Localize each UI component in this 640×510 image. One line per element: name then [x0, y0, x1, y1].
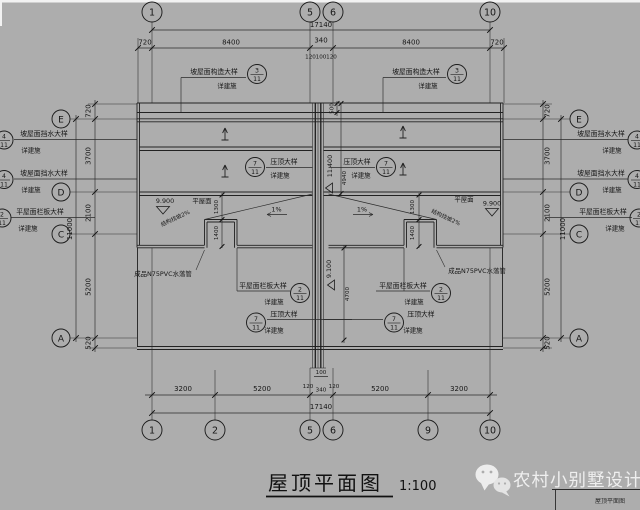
grade-label: 1%: [271, 206, 281, 214]
dim-label: 8400: [222, 39, 240, 47]
callout-detail: 详建施: [21, 146, 41, 155]
axis-label: 5: [307, 8, 313, 19]
detail-number: 2: [298, 287, 302, 294]
scan-edge-top: [0, 0, 640, 3]
dim-label: 1400: [214, 225, 220, 240]
wechat-icon: [476, 465, 511, 497]
watermark: 农村小别墅设计: [476, 465, 640, 497]
note-label: 结构找坡2%: [430, 207, 462, 227]
detail-sheet: 11: [453, 76, 461, 83]
callout-coping: 压顶大样 详建施 7 11: [247, 310, 353, 335]
grid-horizontal-lines: [70, 104, 570, 348]
axis-label: C: [58, 231, 64, 241]
callout-flashing: 坡屋面挡水大样 详建施 4 11: [503, 169, 640, 195]
axis-label: 1: [149, 426, 155, 437]
detail-number: 7: [384, 161, 388, 168]
level-triangle-icon: [157, 207, 170, 215]
detail-sheet: 11: [0, 142, 8, 149]
title-block-fragment: 屋顶平面图: [552, 490, 640, 510]
dim-label: 520: [85, 336, 93, 349]
dim-label: 720: [490, 39, 503, 47]
axis-label: 5: [307, 426, 313, 437]
dim-label: 340: [316, 388, 327, 394]
detail-number: 4: [635, 173, 639, 180]
callout-detail: 详建施: [21, 185, 41, 194]
detail-number: 4: [635, 134, 639, 141]
detail-number: 7: [253, 161, 257, 168]
callout-coping: 压顶大样 详建施 7 11: [246, 157, 313, 180]
detail-number: 3: [255, 68, 259, 75]
slope-arrow-icon: [400, 163, 407, 175]
callout-flashing: 坡屋面挡水大样 详建施 4 11: [0, 169, 137, 195]
dim-label: 120: [305, 55, 316, 61]
title-block-label: 屋顶平面图: [595, 498, 625, 505]
roof-eave-lines: [137, 103, 503, 196]
dim-label: 1300: [410, 199, 416, 214]
page-title: 屋顶平面图: [268, 471, 383, 495]
callout-parapet: 平屋面栏板大样 详建施 2 11: [376, 248, 451, 306]
dim-label: 720: [138, 39, 151, 47]
detail-sheet: 11: [437, 295, 445, 302]
dim-label: 3200: [450, 385, 468, 393]
dim-label: 2100: [544, 204, 552, 222]
detail-number: 3: [455, 68, 459, 75]
callout-text: 平屋面栏板大样: [16, 207, 64, 216]
party-wall-lines: [313, 103, 324, 368]
level-label: 9.100: [325, 260, 333, 278]
dim-label: 4940: [342, 170, 348, 185]
dim-label: 8400: [402, 39, 420, 47]
callout-detail: 详建施: [18, 224, 38, 233]
dim-label: 120: [326, 55, 337, 61]
level-triangle-icon: [328, 280, 335, 290]
callout-coping: 压顶大样 详建施 7 11: [329, 157, 396, 180]
detail-sheet: 11: [252, 325, 260, 332]
dim-label: 5200: [544, 278, 552, 296]
axis-label: 9: [425, 426, 431, 437]
callout-text: 压顶大样: [270, 157, 297, 166]
callout-text: 坡屋面挡水大样: [577, 169, 625, 178]
axis-label: A: [58, 335, 65, 345]
dim-label: 120: [303, 384, 314, 390]
roof-plan-scan: 17140 720 8400 340 8400 720 120 100 120 …: [0, 0, 640, 510]
detail-sheet: 11: [635, 220, 640, 227]
callout-roof-construction: 坡屋面构造大样 详建施 3 11: [181, 65, 267, 113]
dim-label: 5200: [371, 385, 389, 393]
callout-text: 坡屋面构造大样: [190, 67, 238, 76]
grade-label: 1%: [357, 206, 367, 214]
dim-label: 11000: [559, 218, 567, 240]
axis-label: D: [58, 189, 65, 199]
axis-bubbles-bottom: 1 2 5 6 9 10: [142, 420, 500, 440]
callout-text: 平屋面栏板大样: [239, 281, 287, 290]
detail-number: 2: [0, 212, 4, 219]
callout-flashing: 坡屋面挡水大样 详建施 4 11: [0, 129, 137, 155]
callout-text: 压顶大样: [407, 310, 434, 319]
axis-label: A: [576, 335, 583, 345]
detail-sheet: 11: [251, 169, 259, 176]
axis-label: 6: [330, 426, 336, 437]
axis-label: D: [576, 189, 583, 199]
detail-number: 7: [392, 316, 396, 323]
level-triangle-icon: [326, 183, 333, 193]
level-label: 9.900: [156, 197, 174, 205]
title-scale: 1:100: [399, 479, 436, 494]
detail-number: 2: [439, 287, 443, 294]
downspout-label: 成品N75PVC水落管: [448, 266, 506, 275]
dim-label: 3700: [85, 147, 93, 165]
dim-label: 340: [314, 37, 327, 45]
callout-text: 坡屋面挡水大样: [20, 169, 68, 178]
axis-label: C: [576, 231, 582, 241]
dim-label: 720: [544, 104, 552, 117]
callout-detail: 详建施: [351, 171, 371, 180]
detail-number: 4: [2, 134, 6, 141]
callout-detail: 详建施: [217, 81, 237, 90]
drawing-title: 屋顶平面图 1:100: [266, 471, 436, 497]
detail-sheet: 11: [633, 142, 640, 149]
axis-bubbles-right: E D C A: [570, 110, 588, 347]
dim-lines: [76, 100, 95, 352]
callout-text: 压顶大样: [343, 157, 370, 166]
dim-ticks: [73, 101, 98, 351]
dim-label: 1300: [214, 199, 220, 214]
callout-text: 坡屋面挡水大样: [20, 129, 68, 138]
level-triangle-icon: [486, 209, 499, 217]
callout-text: 坡屋面挡水大样: [577, 129, 625, 138]
detail-sheet: 11: [0, 182, 8, 189]
dim-label: 5200: [253, 385, 271, 393]
dim-label: 520: [544, 336, 552, 349]
note-label: 平屋面: [454, 196, 474, 204]
callout-flashing: 坡屋面挡水大样 详建施 4 11: [503, 129, 640, 155]
callout-detail: 详建施: [403, 326, 423, 335]
detail-sheet: 11: [633, 182, 640, 189]
callout-text: 压顶大样: [270, 310, 297, 319]
axis-label: 2: [212, 426, 218, 437]
callout-parapet: 平屋面栏板大样 详建施 2 11: [0, 207, 95, 233]
dim-label: 720: [85, 104, 93, 117]
watermark-brand: 农村小别墅设计: [513, 471, 640, 491]
axis-label: E: [58, 116, 64, 126]
axis-label: 1: [149, 8, 155, 19]
dimensions-bottom: 3200 5200 120 340 120 5200 3200 100 1714…: [145, 370, 497, 416]
scan-edge-left: [0, 0, 2, 26]
callout-detail: 详建施: [602, 185, 622, 194]
dim-label: 4700: [345, 286, 351, 301]
axis-bubbles-top: 1 5 6 10: [142, 2, 500, 22]
detail-sheet: 11: [296, 295, 304, 302]
callout-detail: 详建施: [602, 146, 622, 155]
dim-label: 17140: [310, 21, 332, 29]
slope-arrow-icon: [222, 128, 229, 140]
callout-detail: 详建施: [605, 224, 625, 233]
slope-arrow-icon: [400, 126, 407, 138]
callout-detail: 详建施: [418, 81, 438, 90]
dimensions-right: 720 3700 2100 5200 520 11000: [540, 100, 567, 352]
dim-label: 3700: [544, 147, 552, 165]
callout-coping: 压顶大样 详建施 7 11: [324, 310, 435, 335]
dim-label: 500: [330, 103, 336, 114]
callout-text: 平屋面栏板大样: [579, 207, 627, 216]
slope-arrow-icon: [222, 165, 229, 177]
detail-sheet: 11: [390, 325, 398, 332]
level-label: 11.400: [326, 155, 334, 177]
grid-lines: [70, 22, 570, 420]
axis-label: 6: [330, 8, 336, 19]
dim-label: 120: [329, 384, 340, 390]
note-label: 平屋面: [192, 197, 212, 205]
detail-sheet: 11: [0, 220, 6, 227]
callout-detail: 详建施: [270, 171, 290, 180]
downspout-label: 成品N75PVC水落管: [134, 269, 192, 278]
dimensions-left: 720 3700 2100 5200 520 11000: [66, 100, 98, 352]
callout-detail: 详建施: [264, 326, 284, 335]
party-wall: [310, 103, 326, 368]
callout-roof-construction: 坡屋面构造大样 详建施 3 11: [383, 65, 467, 113]
callout-text: 坡屋面构造大样: [392, 67, 440, 76]
dim-label: 3200: [174, 385, 192, 393]
building-outline: [137, 103, 503, 350]
roof-notes: 平屋面 平屋面 结构找坡2% 结构找坡2% 1% 1% 成品N75PVC水落管 …: [134, 196, 506, 279]
detail-number: 4: [2, 173, 6, 180]
callout-parapet: 平屋面栏板大样 详建施 2 11: [237, 248, 310, 306]
slope-arrows: [222, 126, 407, 177]
terrace-parapet: [137, 347, 503, 350]
dim-label: 17140: [310, 403, 332, 411]
downspout-leader: [196, 250, 205, 270]
callout-text: 平屋面栏板大样: [379, 281, 427, 290]
detail-sheet: 11: [253, 76, 261, 83]
detail-number: 7: [254, 316, 258, 323]
dim-label: 1400: [410, 225, 416, 240]
level-label: 9.900: [483, 200, 501, 208]
callout-detail: 详建施: [264, 297, 284, 306]
dimensions-top: 17140 720 8400 340 8400 720 120 100 120: [135, 21, 507, 61]
dim-label: 100: [316, 55, 327, 61]
roof-plan-drawing: 17140 720 8400 340 8400 720 120 100 120 …: [0, 0, 640, 510]
dim-label: 5200: [85, 278, 93, 296]
axis-label: E: [576, 116, 582, 126]
detail-sheet: 11: [382, 169, 390, 176]
note-label: 结构找坡2%: [159, 208, 191, 228]
callout-detail: 详建施: [404, 297, 424, 306]
downspout-leader: [437, 250, 446, 267]
axis-label: 10: [484, 8, 496, 19]
dim-label: 100: [316, 370, 327, 376]
axis-label: 10: [484, 426, 496, 437]
side-walls: [137, 103, 503, 347]
dim-label: 2100: [85, 204, 93, 222]
